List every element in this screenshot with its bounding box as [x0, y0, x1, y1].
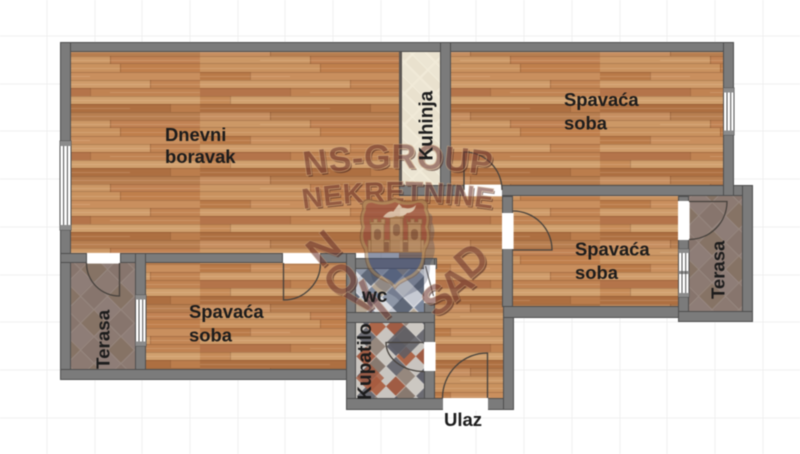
svg-text:Ulaz: Ulaz: [444, 409, 482, 430]
svg-text:wc: wc: [361, 286, 388, 307]
svg-text:soba: soba: [189, 325, 233, 346]
svg-text:Terasa: Terasa: [708, 240, 729, 299]
svg-text:Spavaća: Spavaća: [575, 239, 650, 260]
svg-text:Kupatilo: Kupatilo: [355, 323, 376, 400]
svg-text:Dnevni: Dnevni: [165, 124, 226, 145]
svg-text:Spavaća: Spavaća: [564, 89, 639, 110]
svg-text:Terasa: Terasa: [93, 309, 114, 369]
svg-text:soba: soba: [575, 262, 619, 283]
svg-text:soba: soba: [564, 112, 608, 133]
svg-text:Kuhinja: Kuhinja: [417, 90, 438, 160]
svg-text:Spavaća: Spavaća: [189, 301, 264, 322]
svg-text:boravak: boravak: [165, 146, 236, 167]
